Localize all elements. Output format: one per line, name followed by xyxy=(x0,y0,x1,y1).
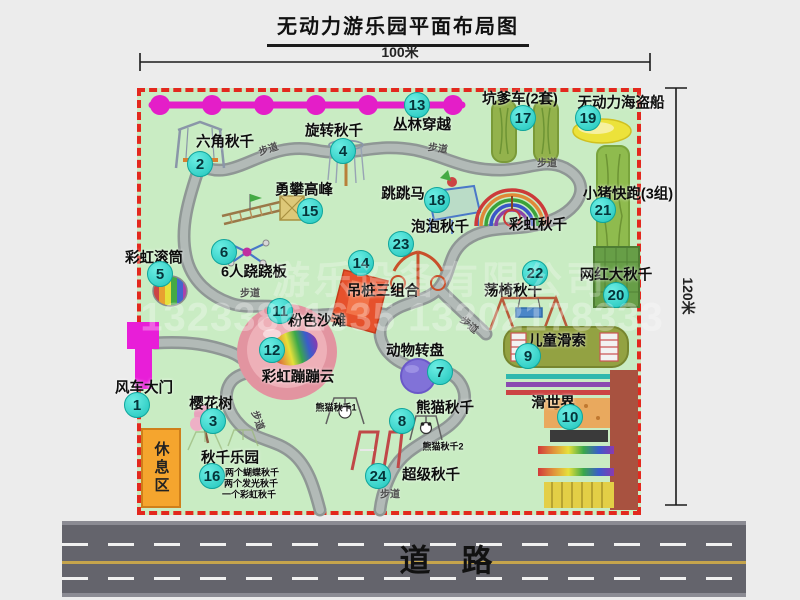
plain-label-1: 熊猫秋千1 xyxy=(315,401,356,414)
attraction-label-23: 泡泡秋千 xyxy=(411,216,469,237)
attraction-badge-8: 8 xyxy=(389,408,415,434)
plain-label-2: 熊猫秋千2 xyxy=(422,440,463,453)
road-label: 道 路 xyxy=(400,536,493,581)
attraction-badge-17: 17 xyxy=(510,105,536,131)
attraction-badge-16: 16 xyxy=(199,463,225,489)
attraction-badge-14: 14 xyxy=(348,250,374,276)
rest-area-label: 休息区 xyxy=(151,441,172,495)
attraction-label-6: 6人跷跷板 xyxy=(221,261,287,282)
attraction-badge-23: 23 xyxy=(388,231,414,257)
attraction-badge-21: 21 xyxy=(590,197,616,223)
attraction-label-14: 吊桩三组合 xyxy=(347,280,420,301)
attraction-badge-15: 15 xyxy=(297,198,323,224)
attraction-badge-20: 20 xyxy=(603,282,629,308)
height-dimension-label: 120米 xyxy=(678,277,698,314)
attraction-badge-7: 7 xyxy=(427,359,453,385)
width-dimension-label: 100米 xyxy=(381,42,418,62)
attraction-label-2: 六角秋千 xyxy=(196,131,254,152)
attraction-badge-4: 4 xyxy=(330,138,356,164)
attraction-badge-3: 3 xyxy=(200,408,226,434)
attraction-label-24: 超级秋千 xyxy=(402,464,460,485)
attraction-label-11: 粉色沙滩 xyxy=(288,310,346,331)
attraction-badge-1: 1 xyxy=(124,392,150,418)
attraction-badge-12: 12 xyxy=(259,337,285,363)
path-label-1: 步道 xyxy=(427,138,449,156)
plain-label-0: 彩虹秋千 xyxy=(509,214,567,235)
attraction-badge-19: 19 xyxy=(575,105,601,131)
path-label-3: 步道 xyxy=(240,285,260,300)
attraction-label-7: 动物转盘 xyxy=(386,340,444,361)
path-label-6: 步道 xyxy=(380,486,400,501)
park-plan-canvas: 无动力游乐园平面布局图 100米 120米 休息区 风车大门1六角秋千2樱花树3… xyxy=(0,0,800,600)
attraction-badge-5: 5 xyxy=(147,261,173,287)
attraction-label-4: 旋转秋千 xyxy=(305,120,363,141)
rest-area: 休息区 xyxy=(141,428,181,508)
attraction-label-8: 熊猫秋千 xyxy=(416,397,474,418)
plain-label-5: 一个彩虹秋千 xyxy=(222,488,276,501)
attraction-badge-22: 22 xyxy=(522,260,548,286)
attraction-badge-18: 18 xyxy=(424,187,450,213)
attraction-badge-6: 6 xyxy=(211,239,237,265)
attraction-badge-13: 13 xyxy=(404,92,430,118)
attraction-badge-9: 9 xyxy=(515,343,541,369)
attraction-badge-10: 10 xyxy=(557,404,583,430)
attraction-label-18: 跳跳马 xyxy=(381,183,425,204)
path-label-2: 步道 xyxy=(537,155,557,170)
attraction-label-15: 勇攀高峰 xyxy=(275,179,333,200)
attraction-badge-2: 2 xyxy=(187,151,213,177)
attraction-badge-11: 11 xyxy=(267,298,293,324)
attraction-label-12: 彩虹蹦蹦云 xyxy=(262,366,335,387)
road: 道 路 xyxy=(62,521,746,597)
